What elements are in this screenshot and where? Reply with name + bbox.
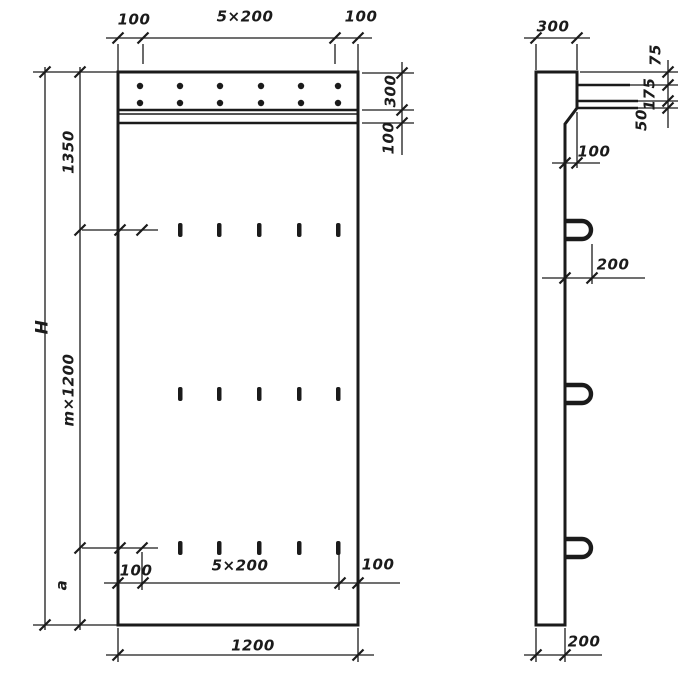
dim-side-rail-spacing: 175 xyxy=(643,78,658,111)
dim-front-bottom-right-margin: 100 xyxy=(362,558,395,573)
side-dimension-lines xyxy=(524,33,678,663)
drawing-linework xyxy=(0,0,700,700)
dim-front-bottom-slot-spacing: 5×200 xyxy=(212,559,269,574)
lifting-loops xyxy=(565,221,591,557)
dim-side-thickness: 200 xyxy=(568,635,601,650)
front-top-strip-lines xyxy=(118,110,358,123)
dim-front-module-segment: m×1200 xyxy=(62,354,77,427)
front-panel-outline xyxy=(118,72,358,625)
dim-front-overall-width: 1200 xyxy=(231,639,275,654)
dim-side-rail-offset-top: 75 xyxy=(649,44,664,66)
dim-front-strip-height: 300 xyxy=(384,75,399,108)
dim-front-upper-segment: 1350 xyxy=(62,130,77,174)
dim-side-loop-protrusion: 200 xyxy=(597,258,630,273)
dim-front-top-left-margin: 100 xyxy=(118,13,151,28)
slot-marks xyxy=(178,223,341,555)
dim-front-band-height: 100 xyxy=(382,122,397,155)
dim-front-top-right-margin: 100 xyxy=(345,10,378,25)
bolt-holes xyxy=(137,83,341,106)
dim-side-step-offset: 100 xyxy=(578,145,611,160)
dim-front-bottom-left-margin: 100 xyxy=(120,564,153,579)
technical-drawing: 100 5×200 100 300 100 H 1350 m×1200 a 10… xyxy=(0,0,700,700)
side-panel-outline xyxy=(536,72,577,625)
dim-front-lower-segment: a xyxy=(55,580,70,591)
dim-front-overall-height: H xyxy=(35,320,52,335)
side-view xyxy=(524,33,678,663)
dim-side-rail-offset-bottom: 50 xyxy=(635,109,650,131)
rail-lines xyxy=(578,85,638,108)
dim-side-top-width: 300 xyxy=(537,20,570,35)
dim-front-top-hole-spacing: 5×200 xyxy=(217,10,274,25)
